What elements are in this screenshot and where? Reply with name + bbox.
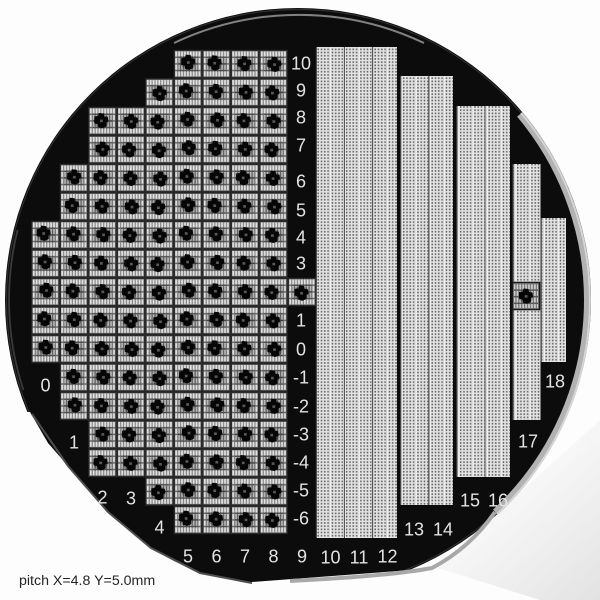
svg-text:11: 11 (350, 548, 369, 568)
svg-text:1: 1 (296, 311, 306, 331)
svg-text:-1: -1 (293, 368, 309, 388)
svg-text:3: 3 (296, 254, 306, 274)
svg-text:7: 7 (240, 547, 250, 567)
svg-text:15: 15 (460, 491, 480, 511)
svg-text:12: 12 (377, 547, 397, 567)
svg-text:10: 10 (291, 54, 311, 74)
svg-text:4: 4 (296, 228, 306, 248)
svg-text:-6: -6 (293, 509, 309, 529)
svg-text:-4: -4 (293, 453, 309, 473)
svg-text:-5: -5 (293, 481, 309, 501)
svg-text:8: 8 (296, 108, 306, 128)
svg-text:4: 4 (154, 518, 164, 538)
svg-text:-3: -3 (293, 425, 309, 445)
svg-text:13: 13 (404, 520, 424, 540)
svg-text:10: 10 (320, 548, 340, 568)
svg-text:0: 0 (296, 340, 306, 360)
svg-text:14: 14 (433, 520, 453, 540)
svg-text:17: 17 (518, 432, 538, 452)
svg-text:9: 9 (297, 547, 307, 567)
svg-text:2: 2 (97, 488, 107, 508)
svg-text:16: 16 (488, 491, 508, 511)
svg-text:5: 5 (183, 547, 193, 567)
svg-text:6: 6 (296, 172, 306, 192)
svg-text:7: 7 (296, 136, 306, 156)
svg-text:1: 1 (69, 433, 79, 453)
svg-text:9: 9 (296, 81, 306, 101)
svg-text:pitch X=4.8 Y=5.0mm: pitch X=4.8 Y=5.0mm (19, 573, 155, 589)
svg-text:-2: -2 (293, 397, 309, 417)
svg-text:18: 18 (545, 372, 565, 392)
svg-text:8: 8 (268, 547, 278, 567)
svg-text:5: 5 (296, 201, 306, 221)
svg-text:3: 3 (126, 489, 136, 509)
svg-text:6: 6 (211, 547, 221, 567)
svg-text:0: 0 (40, 376, 50, 396)
